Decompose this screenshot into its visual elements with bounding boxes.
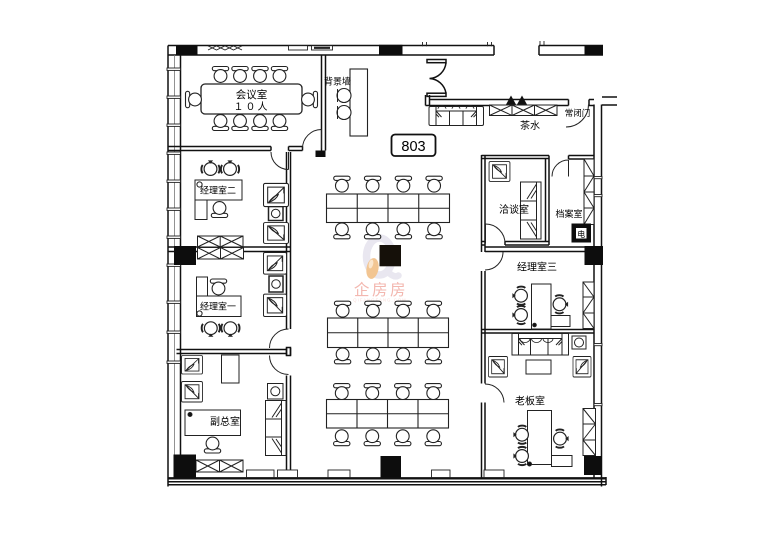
svg-text:茶水: 茶水 bbox=[520, 119, 540, 132]
svg-text:会议室: 会议室 bbox=[236, 88, 268, 101]
svg-text:洽谈室: 洽谈室 bbox=[499, 203, 529, 216]
svg-text:常闭门: 常闭门 bbox=[565, 108, 591, 118]
svg-text:经理室一: 经理室一 bbox=[200, 301, 236, 312]
svg-text:１０人: １０人 bbox=[234, 101, 270, 113]
svg-text:档案室: 档案室 bbox=[555, 208, 582, 219]
svg-text:副总室: 副总室 bbox=[210, 415, 240, 428]
svg-text:803: 803 bbox=[401, 139, 425, 155]
svg-text:背景墙: 背景墙 bbox=[324, 76, 351, 87]
svg-text:老板室: 老板室 bbox=[515, 395, 545, 408]
svg-text:电: 电 bbox=[577, 229, 585, 239]
svg-text:经理室二: 经理室二 bbox=[200, 185, 236, 196]
svg-text:经理室三: 经理室三 bbox=[517, 261, 557, 274]
svg-text:企房房: 企房房 bbox=[354, 281, 408, 299]
